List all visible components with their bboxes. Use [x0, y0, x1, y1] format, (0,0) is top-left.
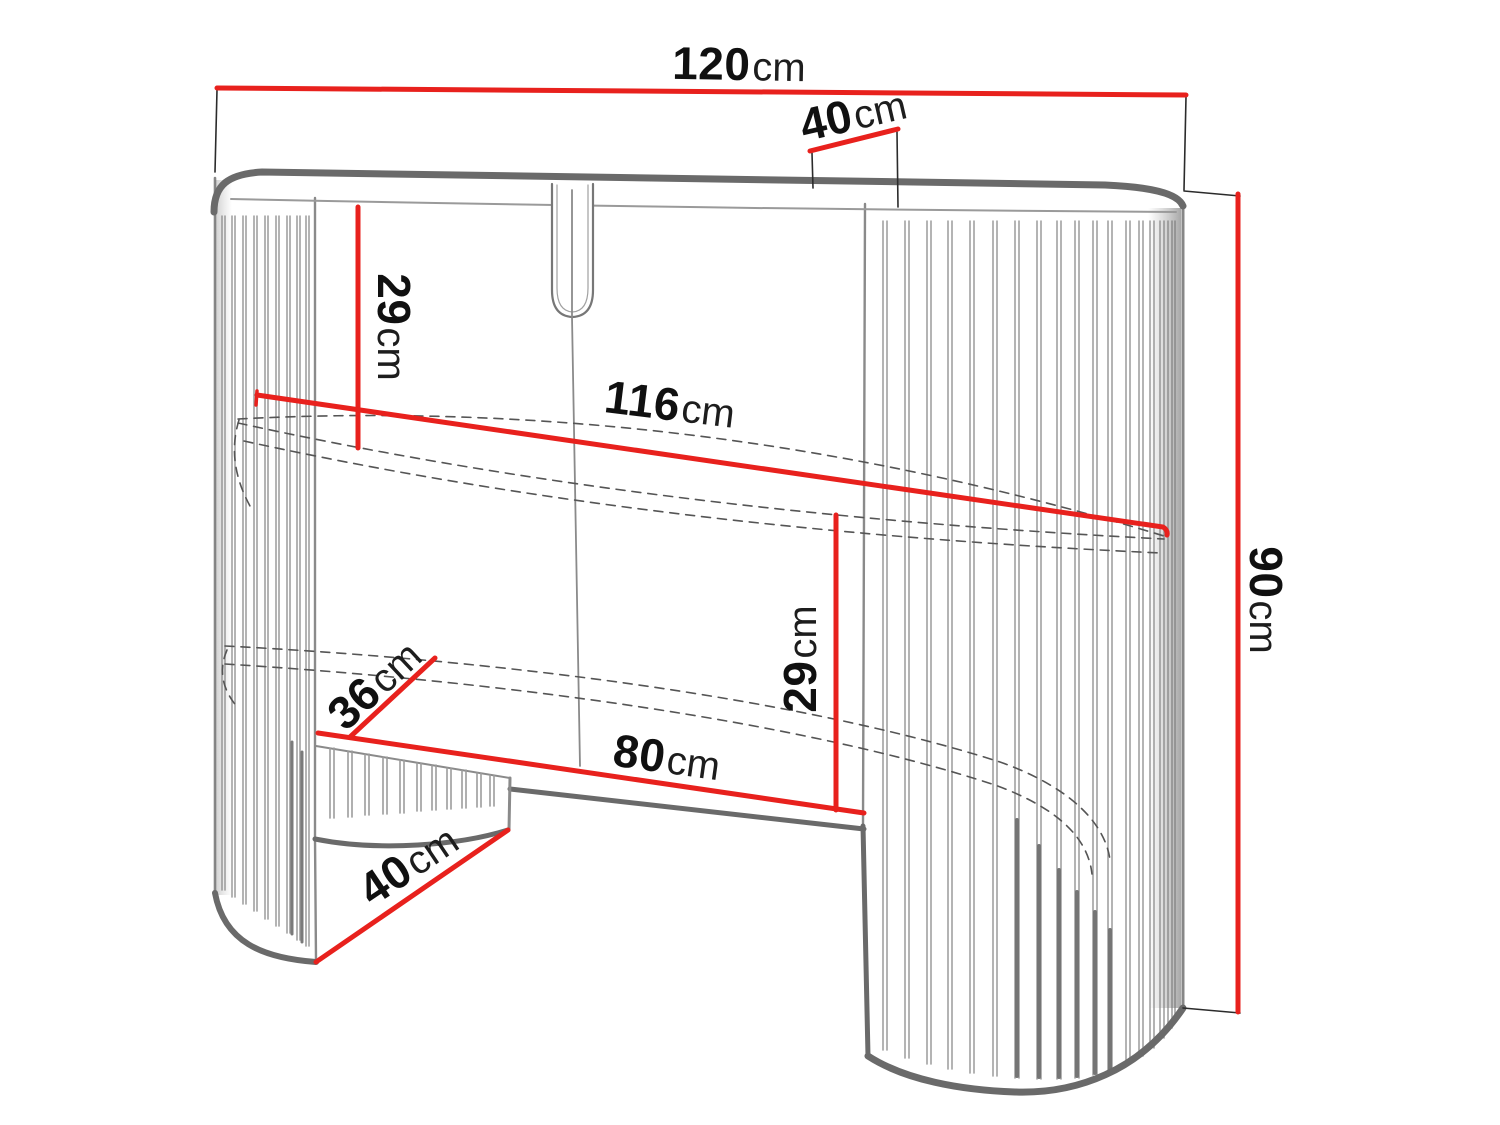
upper-oval-front-rim	[238, 423, 1164, 539]
right-panel-inner-edge-lower	[863, 826, 868, 1056]
left-panel-shading	[215, 180, 232, 895]
dim-top-clearance-label: 29cm	[371, 273, 417, 381]
right-panel-dark-slats	[1017, 820, 1110, 1077]
dim-top-width-unit: cm	[752, 45, 806, 90]
left-panel-inner-edge	[315, 198, 316, 960]
dim-inner-width-value: 116	[602, 370, 683, 431]
right-side-panel	[863, 204, 1183, 1092]
dim-inner-width-unit: cm	[679, 387, 737, 437]
ext-40top-left	[812, 153, 813, 188]
dim-opening-width-value: 80	[610, 724, 669, 783]
ext-90-top	[1184, 191, 1240, 196]
top-inner-rim	[231, 199, 1176, 212]
ext-120-left	[215, 90, 217, 172]
dim-height-unit: cm	[1241, 600, 1285, 653]
right-panel-shading	[1148, 208, 1181, 1008]
dim-opening-height-unit: cm	[781, 605, 825, 658]
apron-comb-teeth	[330, 748, 494, 818]
right-panel-slats	[883, 221, 1175, 1079]
ext-40top-right	[897, 132, 898, 207]
diagram-canvas: 120cm 40cm 29cm 116cm 90cm 29cm 36cm 80c…	[0, 0, 1500, 1125]
ext-90-bottom	[1183, 1008, 1240, 1013]
right-panel-inner-edge	[863, 204, 865, 826]
dim-height-value: 90	[1240, 546, 1292, 598]
apron-right-edge	[509, 778, 510, 830]
dashed-guide-ovals	[222, 416, 1164, 874]
dim-line-116-tick	[256, 391, 257, 405]
dim-top-width-label: 120cm	[672, 40, 806, 88]
back-panel	[510, 184, 864, 829]
front-apron	[315, 746, 510, 846]
dim-top-clearance-unit: cm	[369, 327, 413, 380]
left-side-panel	[215, 178, 316, 962]
dim-opening-height-value: 29	[774, 661, 826, 713]
dim-height-label: 90cm	[1243, 546, 1289, 654]
dim-top-clearance-value: 29	[368, 273, 420, 325]
dim-opening-width-unit: cm	[664, 738, 723, 789]
ext-120-right	[1184, 97, 1186, 190]
upper-oval-left-cap	[234, 420, 250, 506]
left-panel-slats	[222, 216, 309, 946]
dim-top-width-value: 120	[672, 37, 751, 90]
upper-oval-back-rim	[238, 416, 1164, 536]
dim-opening-height-label: 29cm	[777, 605, 823, 713]
back-panel-floor-line	[510, 789, 864, 829]
right-panel-bottom-curve	[868, 1008, 1183, 1092]
